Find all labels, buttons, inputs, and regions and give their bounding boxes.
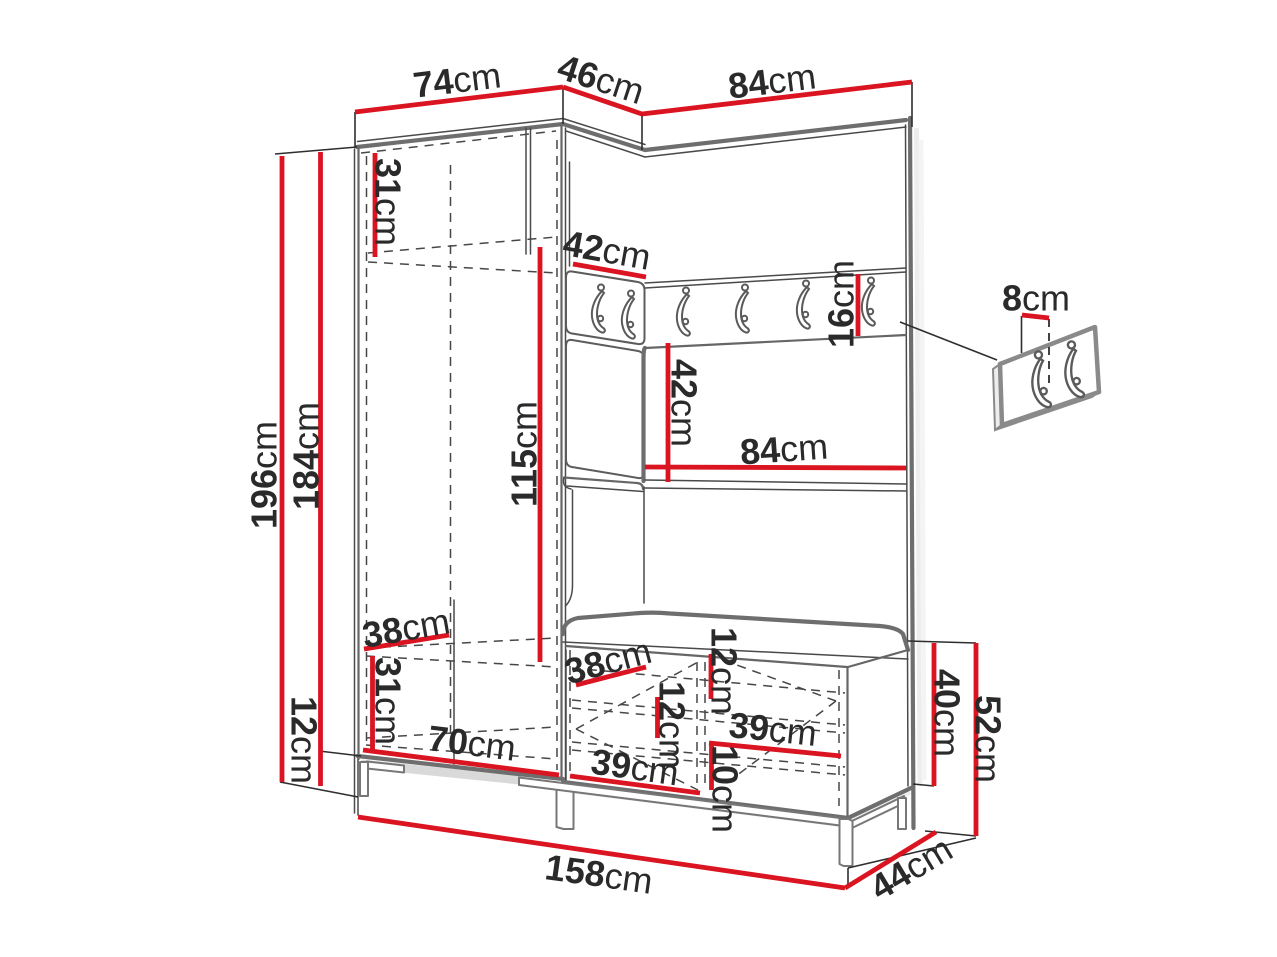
svg-text:12cm: 12cm: [284, 696, 325, 784]
svg-text:196cm: 196cm: [244, 421, 285, 529]
svg-text:40cm: 40cm: [927, 669, 968, 757]
svg-text:12cm: 12cm: [704, 627, 745, 715]
svg-text:8cm: 8cm: [1002, 278, 1070, 319]
svg-text:16cm: 16cm: [821, 260, 862, 348]
svg-text:115cm: 115cm: [504, 401, 545, 507]
svg-text:31cm: 31cm: [368, 657, 409, 745]
svg-text:184cm: 184cm: [286, 402, 327, 510]
svg-text:84cm: 84cm: [739, 425, 830, 472]
svg-text:10cm: 10cm: [705, 745, 746, 833]
svg-text:52cm: 52cm: [968, 695, 1009, 783]
svg-text:42cm: 42cm: [664, 359, 705, 447]
svg-text:31cm: 31cm: [368, 158, 409, 246]
